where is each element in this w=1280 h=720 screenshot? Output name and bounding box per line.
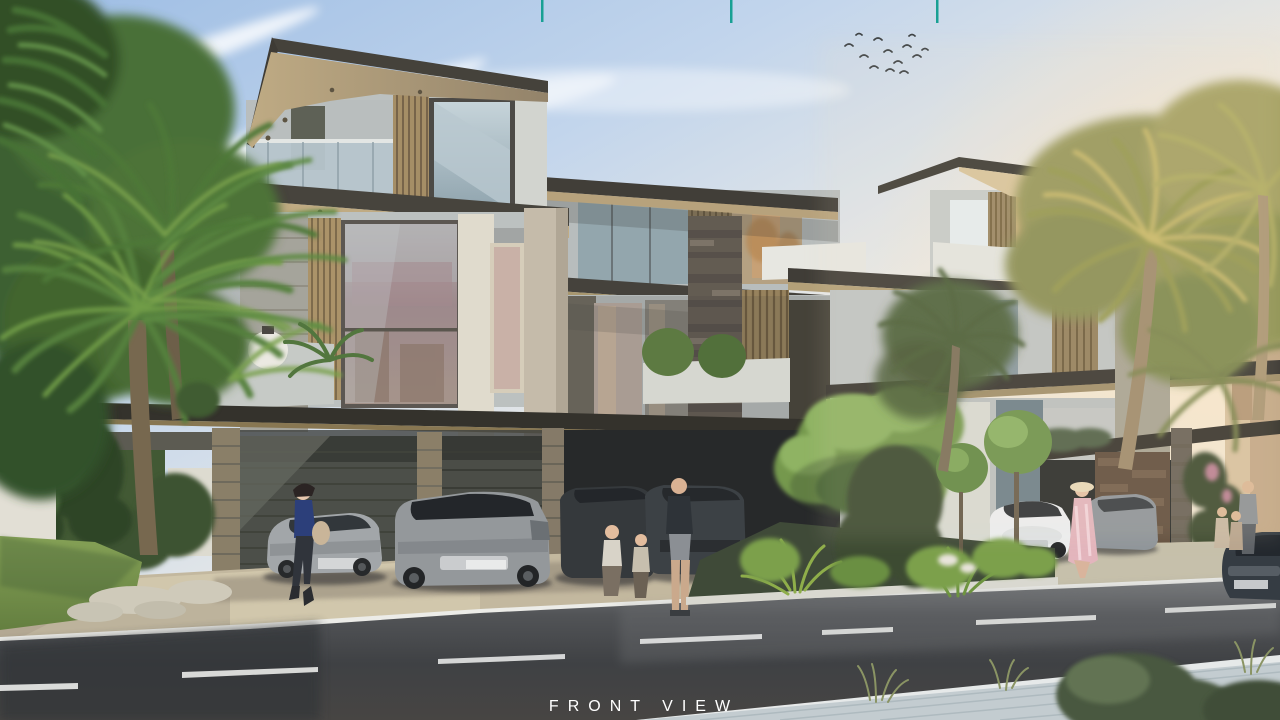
svg-text:FRONT VIEW: FRONT VIEW — [549, 698, 739, 715]
